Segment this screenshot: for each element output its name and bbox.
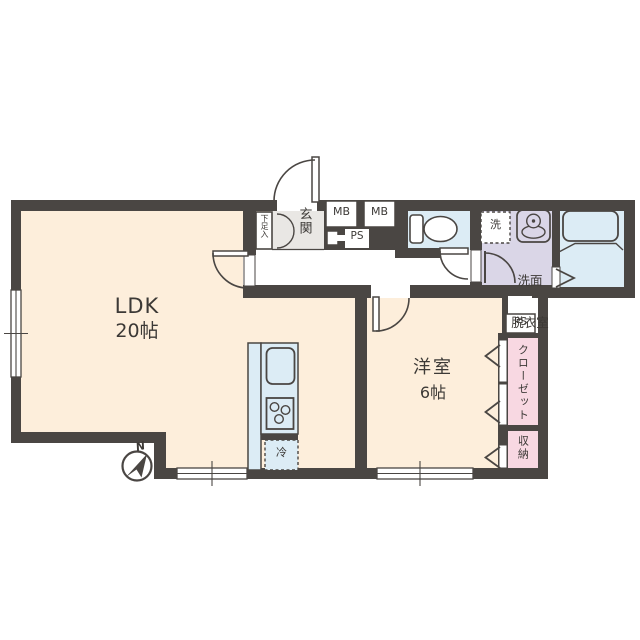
floor-plan: LDK 20帖 洋室 6帖 玄関 下足入 MB MB PS PS 洗 冷 洗面 … bbox=[0, 0, 640, 640]
entrance-label: 玄関 bbox=[296, 207, 311, 235]
kitchen-counter bbox=[248, 343, 261, 470]
ldk-doorway bbox=[244, 255, 255, 286]
western-room-label: 洋室 bbox=[383, 358, 483, 378]
compass-icon bbox=[123, 452, 152, 481]
ldk-label: LDK bbox=[87, 295, 187, 319]
washer-label: 洗 bbox=[481, 219, 510, 231]
meter-box-1-label: MB bbox=[326, 206, 357, 218]
ldk-size-label: 20帖 bbox=[87, 321, 187, 342]
toilet-icon bbox=[410, 215, 457, 243]
western-room-size-label: 6帖 bbox=[383, 384, 483, 402]
storage-label: 収納 bbox=[516, 435, 528, 461]
western-room-doorway bbox=[371, 285, 410, 298]
washroom-label-line1: 洗面 bbox=[496, 274, 564, 288]
closet-label: クローゼット bbox=[516, 344, 528, 422]
meter-box-2-label: MB bbox=[364, 206, 395, 218]
shoe-cabinet-label: 下足入 bbox=[259, 214, 268, 238]
washroom-doorway bbox=[471, 250, 481, 282]
pipe-space-1-shaft bbox=[327, 231, 338, 245]
stove-icon bbox=[267, 398, 294, 429]
kitchen-sink-icon bbox=[267, 348, 295, 384]
washroom-label-line2: 脱衣室 bbox=[496, 316, 564, 330]
fridge-label: 冷 bbox=[265, 447, 298, 459]
pipe-space-1-label: PS bbox=[344, 231, 370, 243]
entrance-door bbox=[274, 157, 319, 202]
